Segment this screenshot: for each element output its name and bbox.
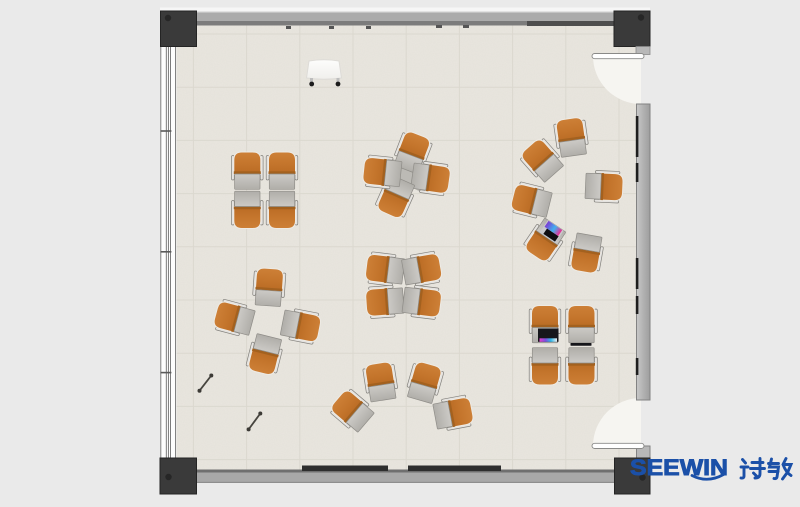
svg-text:SEEWIN: SEEWIN bbox=[630, 455, 728, 480]
